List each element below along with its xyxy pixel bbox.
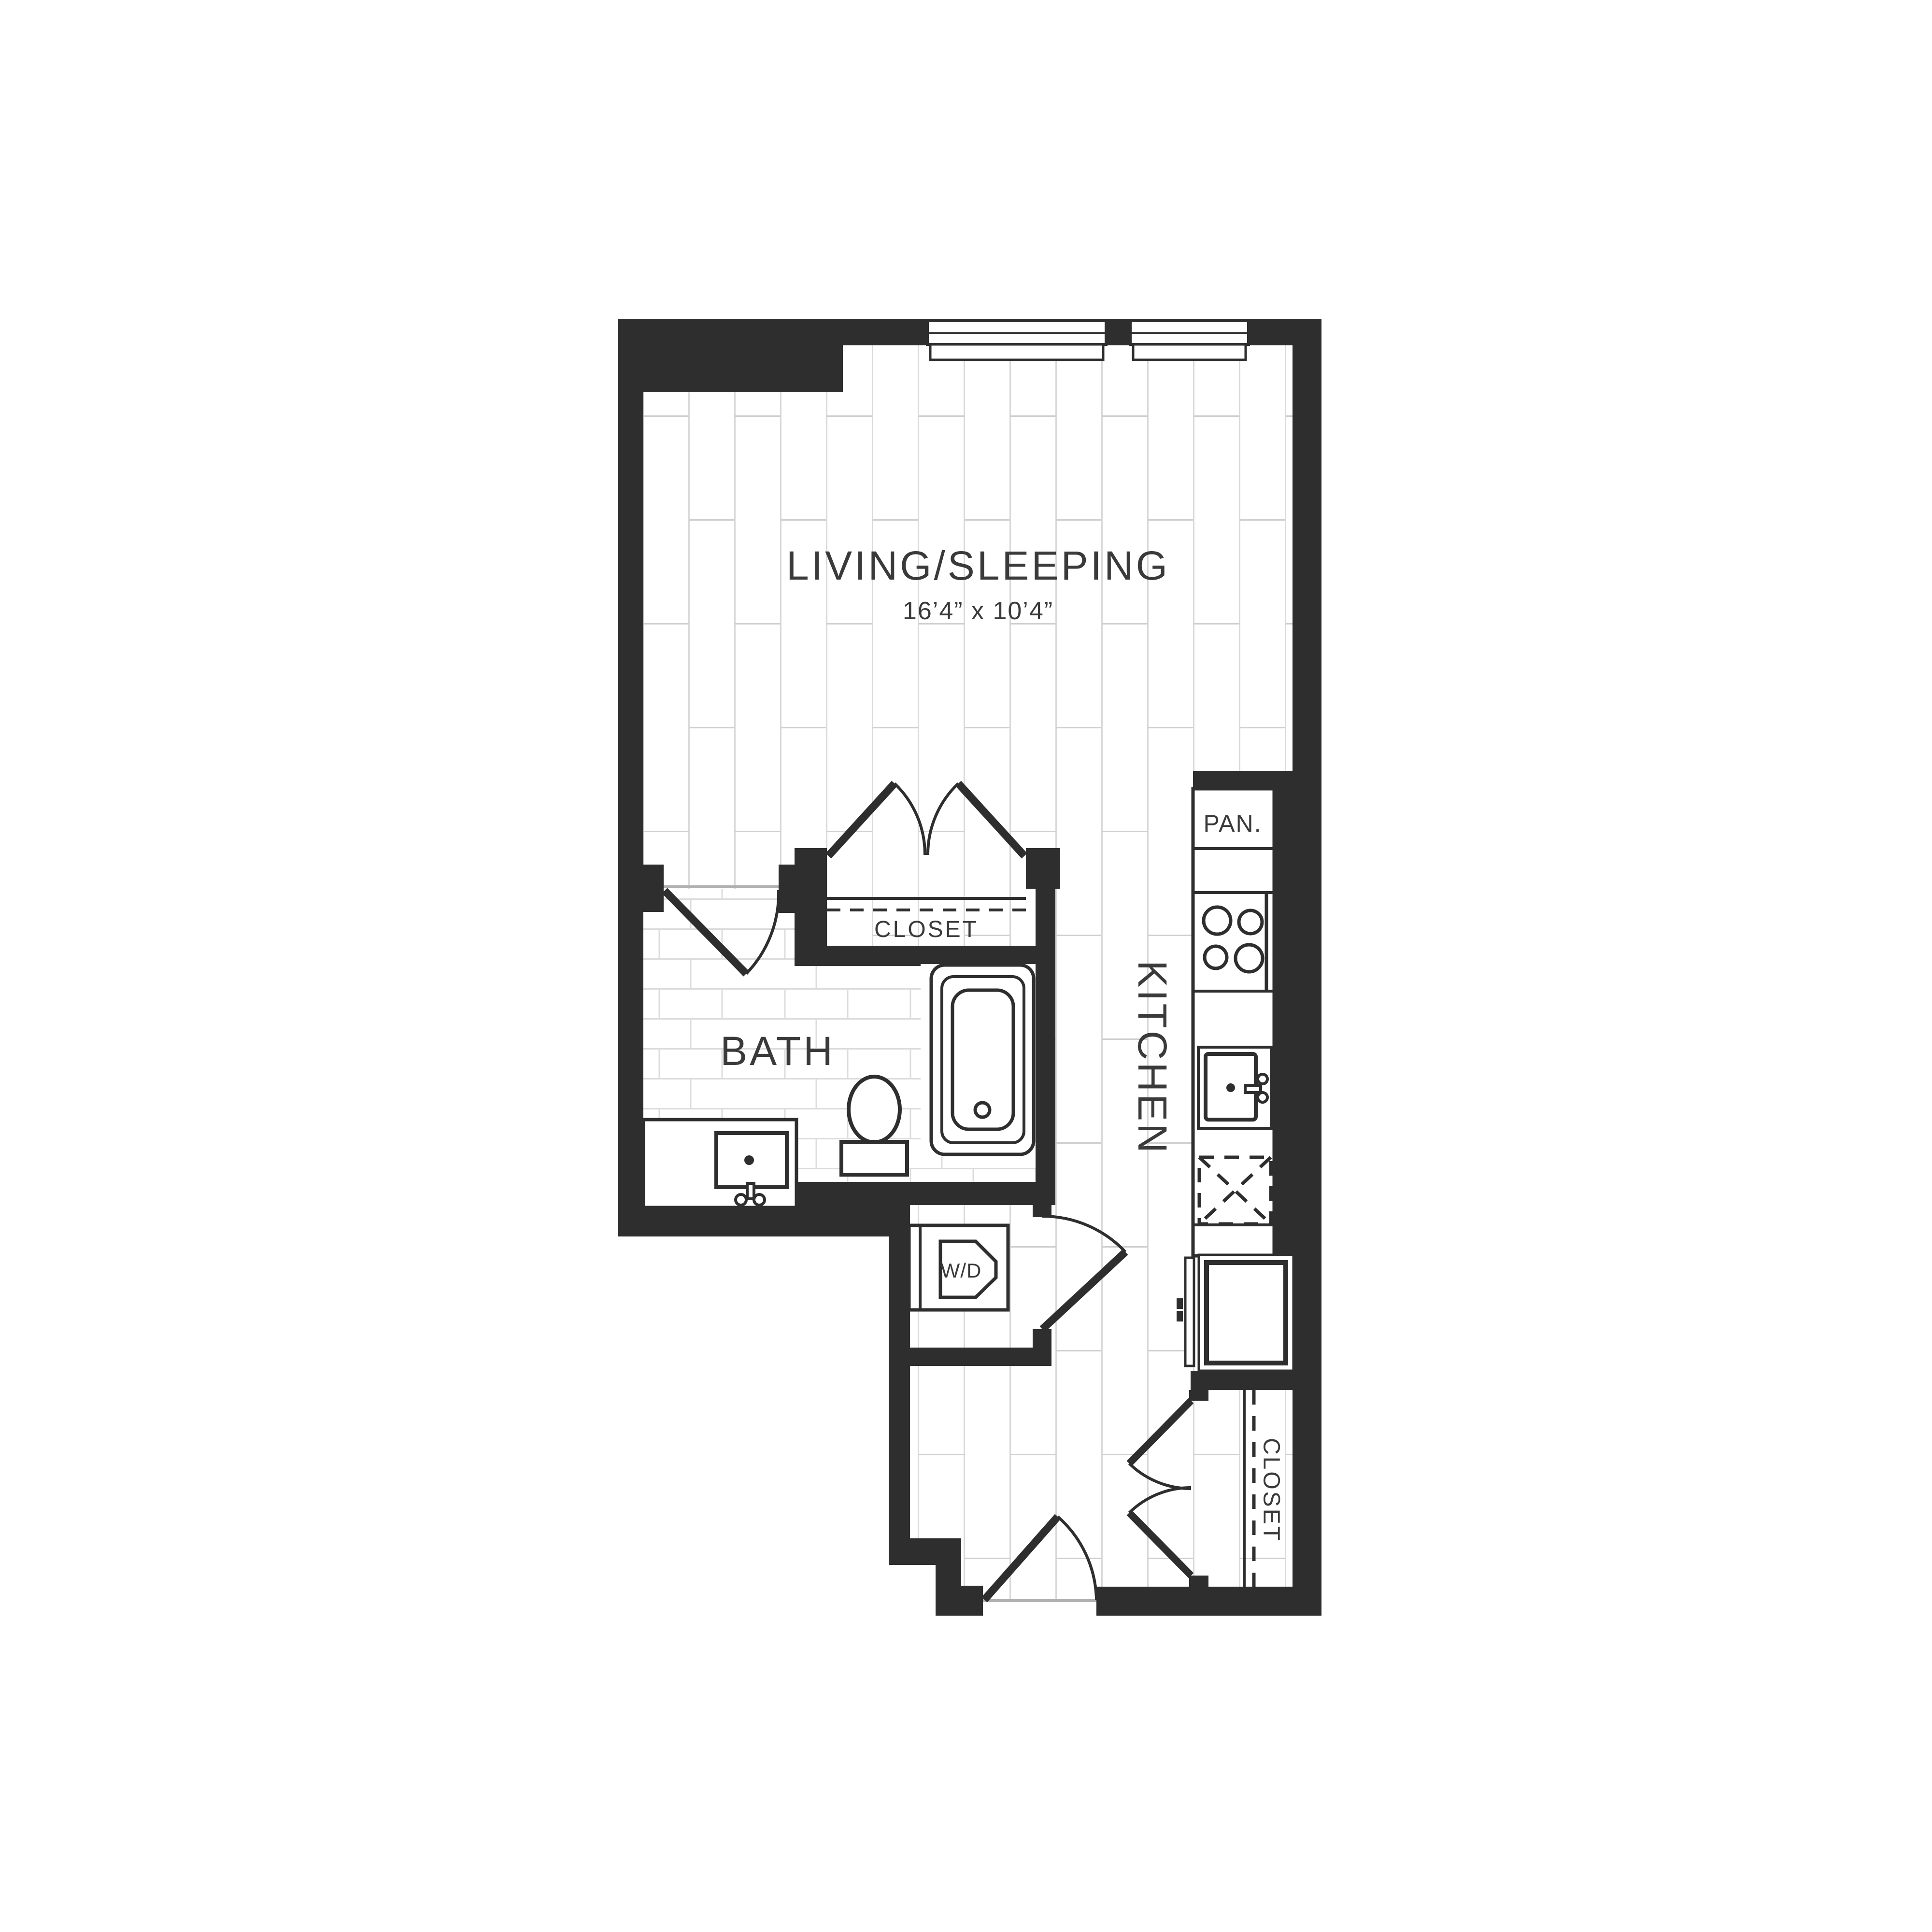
- living-room-label: LIVING/SLEEPING: [786, 543, 1170, 588]
- pantry-label: PAN.: [1204, 810, 1262, 837]
- living-room-dimensions: 16’4” x 10’4”: [903, 597, 1053, 625]
- windows: [927, 321, 1249, 360]
- vanity-sink-icon: [643, 1120, 796, 1207]
- toilet-icon: [841, 1077, 907, 1175]
- floor-plan-svg: LIVING/SLEEPING 16’4” x 10’4” CLOSET PAN…: [0, 0, 1932, 1932]
- window-icon: [927, 321, 1106, 360]
- floor-plan: LIVING/SLEEPING 16’4” x 10’4” CLOSET PAN…: [0, 0, 1932, 1932]
- kitchen-sink-icon: [1198, 1047, 1271, 1128]
- kitchen-counter: [1193, 789, 1274, 1256]
- washer-dryer-label: W/D: [941, 1259, 982, 1282]
- closet-upper-label: CLOSET: [874, 917, 979, 942]
- window-icon: [1130, 321, 1249, 360]
- refrigerator-icon: [1177, 1255, 1293, 1371]
- bath-label: BATH: [720, 1028, 835, 1074]
- kitchen-label: KITCHEN: [1130, 960, 1175, 1155]
- bathtub-icon: [921, 964, 1036, 1157]
- closet-entry-label: CLOSET: [1259, 1438, 1284, 1542]
